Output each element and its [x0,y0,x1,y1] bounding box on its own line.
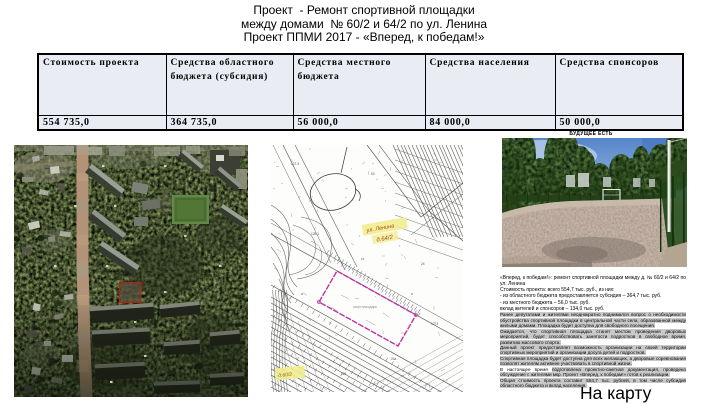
svg-text:24: 24 [421,262,425,266]
svg-text:63: 63 [371,172,375,176]
svg-text:a: a [301,292,303,296]
svg-text:спорт.площадка: спорт.площадка [353,305,377,309]
svg-text:128.1: 128.1 [311,232,319,236]
svg-text:в: в [411,292,413,296]
svg-text:128: 128 [341,372,347,376]
svg-text:ст.: ст. [361,257,365,261]
svg-text:1273: 1273 [431,322,438,326]
svg-text:127.4: 127.4 [291,162,299,166]
svg-text:24a: 24a [391,357,397,361]
